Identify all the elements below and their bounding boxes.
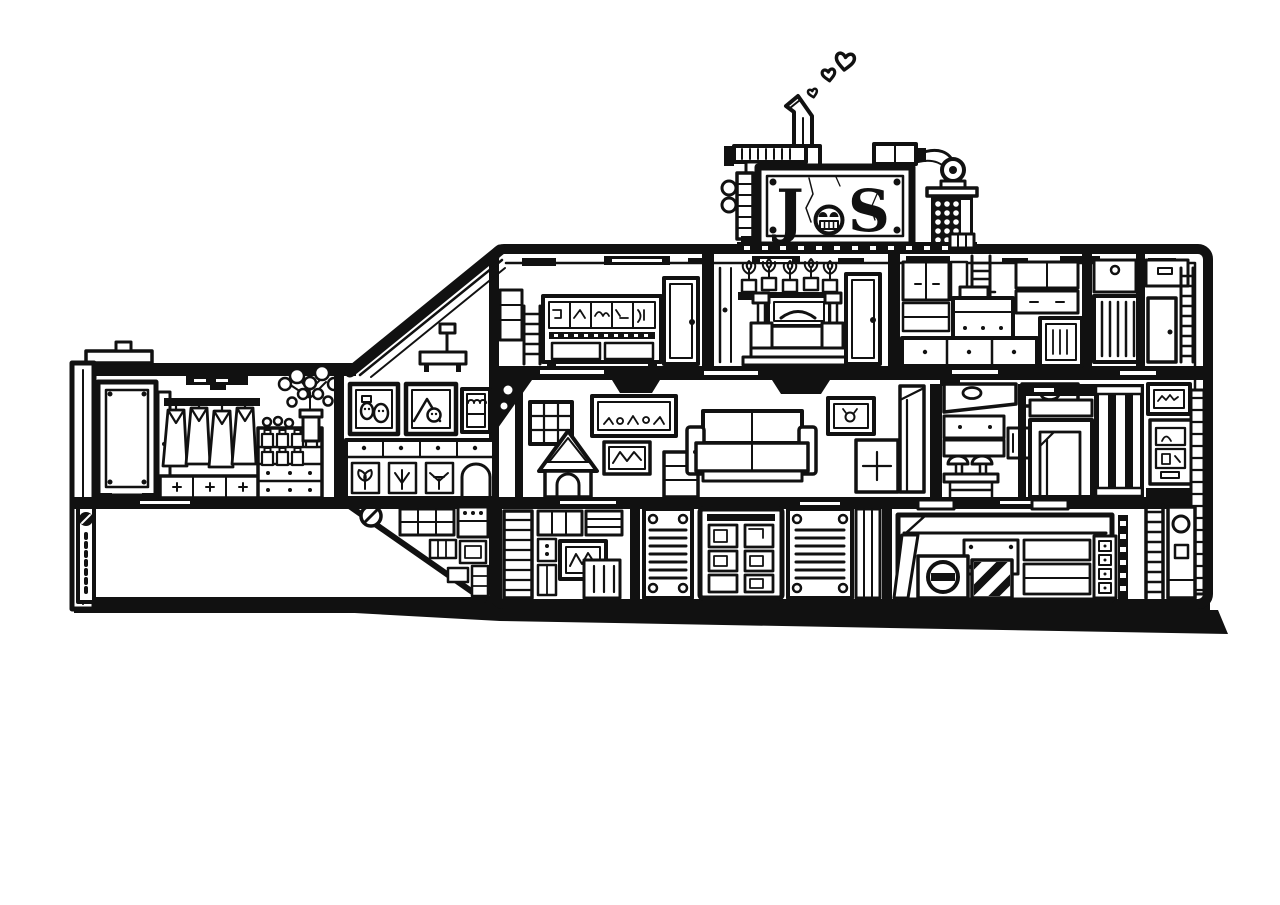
louver-panel	[1094, 296, 1138, 362]
smiley-face-icon	[816, 207, 843, 234]
louver-panel-a	[644, 509, 692, 598]
picture-frame-ghosts	[350, 384, 398, 434]
indicator-column	[1094, 536, 1116, 598]
sign-letter-left: J	[771, 177, 803, 245]
open-door-panel	[900, 386, 924, 492]
cutaway-house-illustration: J S	[0, 0, 1280, 905]
picture-frame-small	[462, 389, 490, 432]
small-picture	[604, 442, 650, 474]
wall	[888, 254, 900, 366]
porthole-panel	[1168, 507, 1195, 598]
cabinet-row	[346, 440, 494, 498]
equipment-rack	[504, 511, 532, 598]
counter	[902, 338, 1037, 366]
console-cabinet	[543, 296, 661, 367]
left-post	[78, 506, 94, 602]
storage-tank	[894, 500, 1128, 612]
wall	[630, 503, 640, 603]
vending-unit	[1146, 384, 1196, 497]
wall	[490, 503, 502, 603]
pillar-section	[1094, 384, 1144, 497]
wide-picture	[592, 396, 676, 436]
wall	[882, 503, 892, 603]
pet-picture	[828, 398, 874, 434]
door	[664, 278, 698, 364]
dishwasher	[1040, 318, 1082, 366]
bottom-floor	[400, 500, 1195, 612]
bathroom	[944, 384, 1094, 497]
sign-letter-right: S	[848, 177, 890, 245]
picture-frame-mountain	[406, 384, 456, 434]
ceiling-lamp	[612, 380, 660, 393]
shower-stall	[1030, 420, 1092, 497]
door	[1148, 298, 1176, 362]
roof-vent	[86, 351, 152, 363]
ceiling-lamp	[772, 380, 830, 394]
picture-frames	[350, 384, 490, 434]
sink-faucets	[944, 456, 998, 497]
sofa	[687, 411, 816, 481]
door	[846, 274, 880, 364]
server-rack	[700, 502, 782, 598]
hatch-sign	[918, 556, 968, 598]
louver-panel-b	[788, 509, 852, 598]
wall	[930, 384, 942, 497]
closet-door	[98, 382, 156, 498]
cross-handle-cabinet	[856, 440, 898, 492]
wall	[702, 254, 714, 366]
interior-wall	[334, 376, 344, 499]
